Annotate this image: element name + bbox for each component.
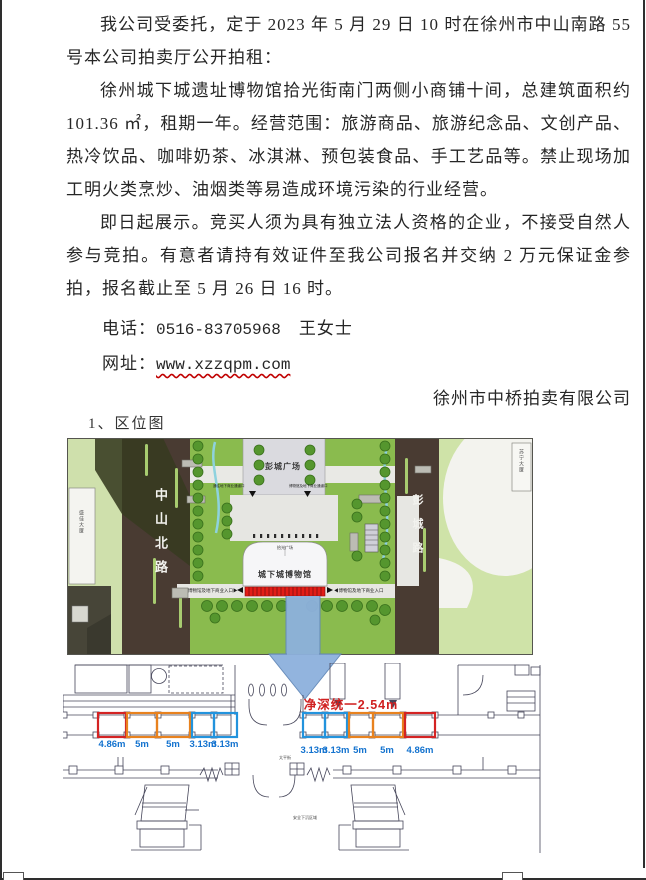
paragraph-property: 徐州城下城遗址博物馆拾光街南门两侧小商铺十间，总建筑面积约 101.36 ㎡，租… — [66, 74, 631, 206]
paragraph-intro: 我公司受委托，定于 2023 年 5 月 29 日 10 时在徐州市中山南路 5… — [66, 8, 631, 74]
shop-box-left-2 — [127, 713, 157, 737]
phone-label: 电话： — [102, 319, 156, 338]
left-building — [69, 488, 95, 584]
plan-stairs-right — [339, 785, 409, 850]
page-edge-left — [0, 0, 2, 880]
label-entrance-left: 通往地下商业通道口 — [213, 484, 245, 489]
dim-left-5: 3.13m — [205, 739, 245, 750]
shops-floor-plan: 净深统一2.54m 4.86m 5m 5m 3.13m 3.13m 3.13m … — [63, 663, 543, 858]
label-sunken-area: 安全下沉区域 — [279, 815, 331, 821]
shop-box-right-5 — [405, 713, 435, 737]
dim-right-5: 4.86m — [400, 745, 440, 756]
plan-lower-walls — [63, 763, 540, 797]
website-line: 网址：www.xzzqpm.com — [66, 347, 646, 382]
label-museum-plaza: 拾光广场 — [267, 545, 303, 551]
shop-box-left-5 — [214, 713, 237, 737]
label-side-entry-right: ◀博物馆及地下商业入口 — [334, 588, 384, 594]
label-road-pengcheng: 彭城路 — [409, 494, 425, 566]
plan-stairs-left — [131, 785, 201, 850]
phone-line: 电话：0516-83705968 王女士 — [66, 312, 646, 347]
section-title-location-map: 1、区位图 — [88, 412, 166, 433]
label-left-building: 盛佳大厦 — [78, 510, 85, 534]
shop-box-right-4 — [373, 713, 403, 737]
scanned-auction-notice-page: 我公司受委托，定于 2023 年 5 月 29 日 10 时在徐州市中山南路 5… — [0, 0, 646, 880]
bottom-left-partial-box — [3, 872, 24, 880]
depth-note: 净深统一2.54m — [276, 694, 426, 713]
page-edge-right — [643, 0, 645, 868]
plan-top-left-rooms — [63, 665, 235, 715]
paragraph-terms: 即日起展示。竞买人须为具有独立法人资格的企业，不接受自然人参与竞拍。有意者请持有… — [66, 206, 631, 305]
label-entrance-right: 博物馆及地下商业通道口 — [289, 484, 328, 489]
label-museum: 城下城博物馆 — [245, 569, 325, 580]
floor-plan-drawing — [63, 663, 543, 858]
label-road-zhongshan: 中山北路 — [151, 488, 170, 584]
label-side-entry-left: 博物馆及地下商业入口▶ — [188, 588, 238, 594]
bottom-right-partial-box — [502, 872, 523, 880]
website-url: www.xzzqpm.com — [156, 356, 290, 374]
label-pengcheng-plaza: 彭城广场 — [265, 461, 301, 472]
phone-contact: 王女士 — [299, 319, 353, 338]
phone-number: 0516-83705968 — [156, 321, 281, 339]
shop-box-left-3 — [157, 713, 190, 737]
shop-box-left-1 — [98, 713, 126, 737]
website-label: 网址： — [102, 354, 156, 373]
company-signature: 徐州市中桥拍卖有限公司 — [66, 382, 645, 415]
label-street: 太平街 — [267, 755, 303, 761]
plan-right-rooms — [458, 665, 540, 853]
plan-shop-band — [63, 712, 540, 738]
shops-highlight-strip — [245, 587, 325, 596]
label-top-right-building: 苏宁大厦 — [518, 449, 525, 473]
notice-text: 我公司受委托，定于 2023 年 5 月 29 日 10 时在徐州市中山南路 5… — [66, 8, 631, 305]
museum-east-escalator — [365, 524, 378, 552]
museum-forecourt — [230, 495, 338, 541]
